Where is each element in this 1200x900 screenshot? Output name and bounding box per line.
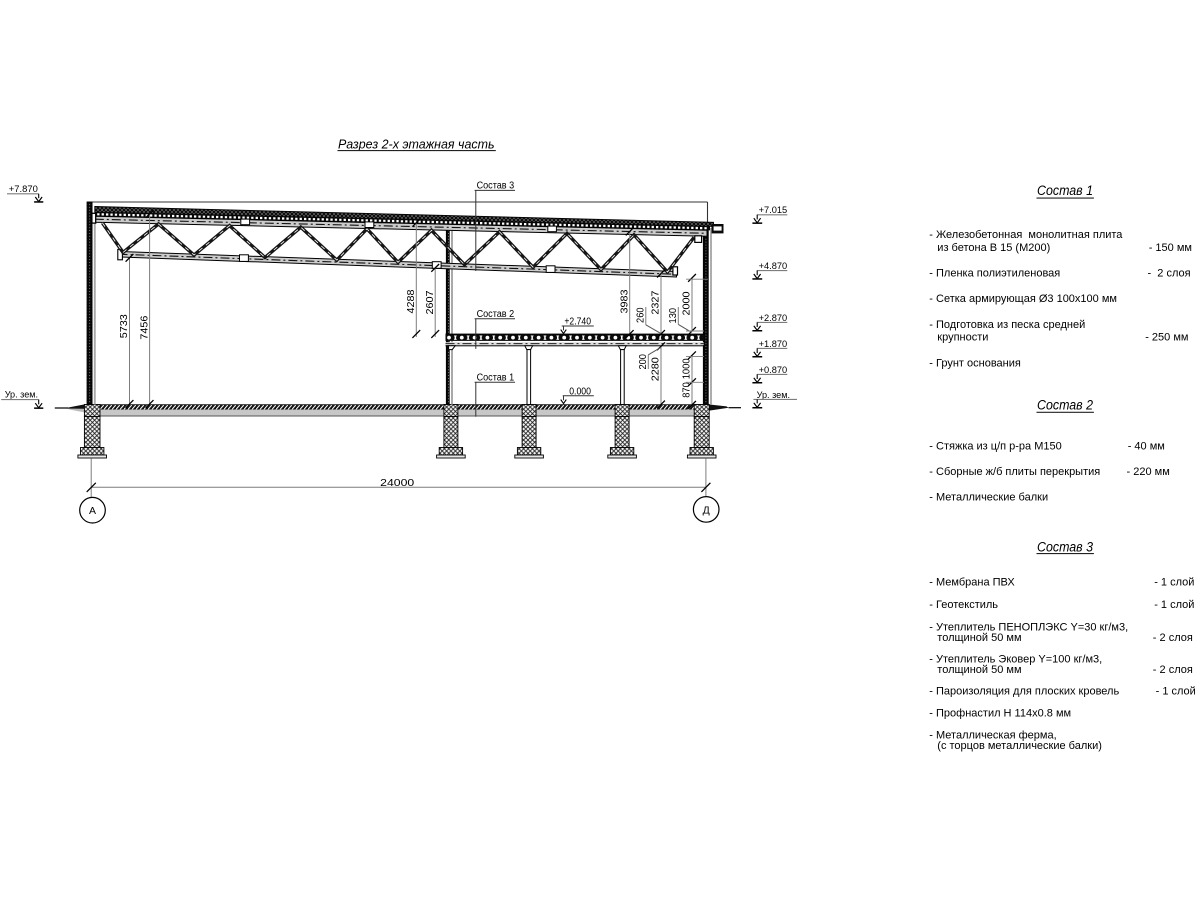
svg-text:- Подготовка из песка средней: - Подготовка из песка средней [929, 319, 1085, 331]
svg-text:3983: 3983 [619, 289, 630, 313]
svg-text:200: 200 [638, 354, 649, 370]
svg-text:- Грунт основания: - Грунт основания [929, 357, 1021, 369]
svg-text:130: 130 [668, 308, 679, 324]
svg-text:- 2 слоя: - 2 слоя [1153, 664, 1193, 676]
svg-text:Ур. зем.: Ур. зем. [757, 389, 790, 400]
svg-text:- Геотекстиль: - Геотекстиль [929, 599, 998, 611]
svg-text:2280: 2280 [651, 357, 662, 381]
svg-text:Состав 2: Состав 2 [1037, 398, 1093, 413]
svg-text:(с торцов металлические балки): (с торцов металлические балки) [937, 740, 1102, 752]
svg-text:- Профнастил Н 114х0.8 мм: - Профнастил Н 114х0.8 мм [929, 708, 1071, 720]
svg-text:2327: 2327 [651, 290, 662, 314]
svg-text:5733: 5733 [119, 314, 130, 338]
svg-text:260: 260 [635, 307, 646, 323]
svg-text:- 40 мм: - 40 мм [1128, 440, 1165, 452]
svg-text:2000: 2000 [682, 291, 693, 315]
svg-text:+4.870: +4.870 [759, 260, 788, 271]
svg-text:4288: 4288 [406, 289, 417, 313]
svg-text:- 150 мм: - 150 мм [1149, 242, 1192, 254]
svg-text:1000: 1000 [682, 358, 693, 379]
svg-text:- 250 мм: - 250 мм [1145, 332, 1188, 344]
svg-text:- 2 слоя: - 2 слоя [1148, 268, 1191, 280]
svg-text:7456: 7456 [139, 315, 150, 339]
svg-text:- Пленка полиэтиленовая: - Пленка полиэтиленовая [929, 268, 1060, 280]
svg-text:870: 870 [682, 382, 693, 398]
svg-text:- Сетка армирующая Ø3 100х100: - Сетка армирующая Ø3 100х100 мм [929, 293, 1117, 305]
svg-text:- 220 мм: - 220 мм [1127, 466, 1170, 478]
svg-text:Состав 1: Состав 1 [1037, 183, 1093, 198]
svg-text:24000: 24000 [380, 478, 414, 489]
svg-text:+7.870: +7.870 [9, 183, 38, 194]
svg-text:А: А [89, 505, 96, 517]
svg-text:Состав 3: Состав 3 [1037, 540, 1093, 555]
svg-text:толщиной 50 мм: толщиной 50 мм [937, 632, 1021, 644]
svg-text:крупности: крупности [937, 332, 988, 344]
svg-text:из бетона В 15 (М200): из бетона В 15 (М200) [937, 242, 1050, 254]
svg-text:- 1 слой: - 1 слой [1154, 576, 1194, 588]
svg-text:+1.870: +1.870 [759, 338, 788, 349]
svg-text:+7.015: +7.015 [759, 204, 788, 215]
svg-text:толщиной 50 мм: толщиной 50 мм [937, 664, 1021, 676]
svg-text:- 1 слой: - 1 слой [1154, 599, 1194, 611]
svg-text:- Сборные ж/б плиты перекрытия: - Сборные ж/б плиты перекрытия [929, 466, 1100, 478]
svg-text:Ур. зем.: Ур. зем. [5, 389, 38, 400]
svg-text:Д: Д [703, 504, 710, 516]
svg-text:- 1 слой: - 1 слой [1156, 686, 1196, 698]
svg-text:- Железобетонная монолитная п: - Железобетонная монолитная плита [929, 229, 1123, 241]
svg-text:- Стяжка из ц/п р-ра М150: - Стяжка из ц/п р-ра М150 [929, 440, 1061, 452]
svg-text:- 2 слоя: - 2 слоя [1153, 632, 1193, 644]
svg-text:Разрез 2-х этажная часть: Разрез 2-х этажная часть [338, 136, 495, 151]
svg-text:2607: 2607 [425, 290, 436, 314]
svg-text:+0.870: +0.870 [759, 364, 788, 375]
svg-text:- Металлические балки: - Металлические балки [929, 492, 1048, 504]
svg-text:- Мембрана ПВХ: - Мембрана ПВХ [929, 576, 1015, 588]
svg-text:- Пароизоляция для плоских кро: - Пароизоляция для плоских кровель [929, 686, 1119, 698]
svg-text:+2.870: +2.870 [759, 312, 788, 323]
